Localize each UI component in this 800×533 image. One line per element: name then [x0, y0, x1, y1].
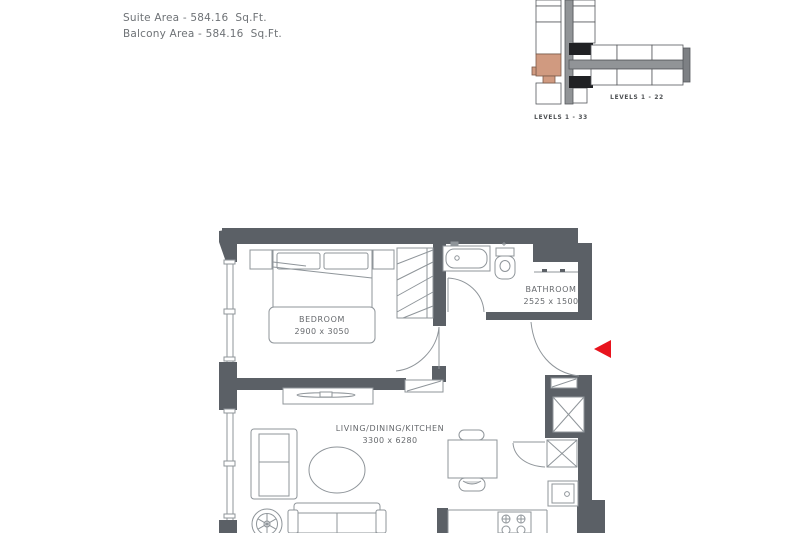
vent-louvre: [551, 378, 577, 388]
bathtub: [443, 242, 490, 271]
entry-arrow: [594, 340, 611, 358]
plant: [252, 509, 282, 533]
wall-top: [222, 228, 533, 244]
living-furniture: [251, 388, 578, 533]
wall-bathroom-right: [578, 262, 592, 318]
kitchen-sink: [548, 481, 578, 506]
sofa: [288, 503, 386, 533]
living-label: LIVING/DINING/KITCHEN: [336, 424, 445, 433]
pillow-right: [324, 253, 368, 269]
towel-rail: [534, 269, 578, 272]
hob: [498, 512, 531, 533]
bathroom-dimensions: 2525 x 1500: [524, 297, 579, 306]
bedroom-door: [396, 327, 439, 371]
nightstand-left: [250, 250, 272, 269]
wall-right-lower: [578, 438, 592, 502]
bedroom-dimensions: 2900 x 3050: [295, 327, 350, 336]
wall-left-bottom: [219, 520, 237, 533]
entry-door: [531, 322, 579, 376]
dining-set: [448, 430, 497, 491]
key-plan: LEVELS 1 - 33 LEVELS 1 - 22: [532, 0, 690, 121]
wall-right-upper: [578, 243, 592, 263]
wall-top-right-block: [533, 228, 578, 262]
bed-foot: [269, 307, 375, 343]
toilet: [495, 242, 515, 279]
elevator-shaft: [553, 397, 584, 432]
wall-left-mid: [219, 362, 237, 410]
armchair: [251, 429, 297, 499]
bedroom-window: [224, 260, 235, 362]
sliding-door: [405, 380, 443, 392]
living-window: [224, 409, 235, 520]
wall-bottom-right-block: [577, 500, 605, 533]
nightstand-right: [373, 250, 394, 269]
bedroom-label: BEDROOM: [299, 315, 345, 324]
tv-console: [283, 388, 373, 404]
pillow-left: [277, 253, 320, 269]
dining-chair-top: [459, 430, 484, 440]
floorplan-page: Suite Area - 584.16 Sq.Ft. Balcony Area …: [0, 0, 800, 533]
utility-shaft: [547, 440, 577, 467]
bathroom-door: [448, 278, 484, 312]
round-rug: [309, 447, 365, 493]
wall-bathroom-bottom: [486, 312, 592, 320]
tower-levels-label: LEVELS 1 - 33: [534, 115, 588, 121]
wall-kitchen-stub: [437, 508, 448, 533]
dining-table: [448, 440, 497, 478]
kitchen-counter: [448, 510, 547, 533]
utility-door: [513, 442, 545, 467]
bathroom-label: BATHROOM: [525, 285, 576, 294]
wardrobe: [397, 248, 433, 318]
plan-canvas: LEVELS 1 - 33 LEVELS 1 - 22: [0, 0, 800, 533]
living-dimensions: 3300 x 6280: [363, 436, 418, 445]
key-plan-highlighted-unit: [532, 54, 561, 83]
floor-plan: BEDROOM 2900 x 3050 BATHROOM 2525 x 1500…: [219, 228, 611, 533]
wing-levels-label: LEVELS 1 - 22: [610, 95, 664, 101]
